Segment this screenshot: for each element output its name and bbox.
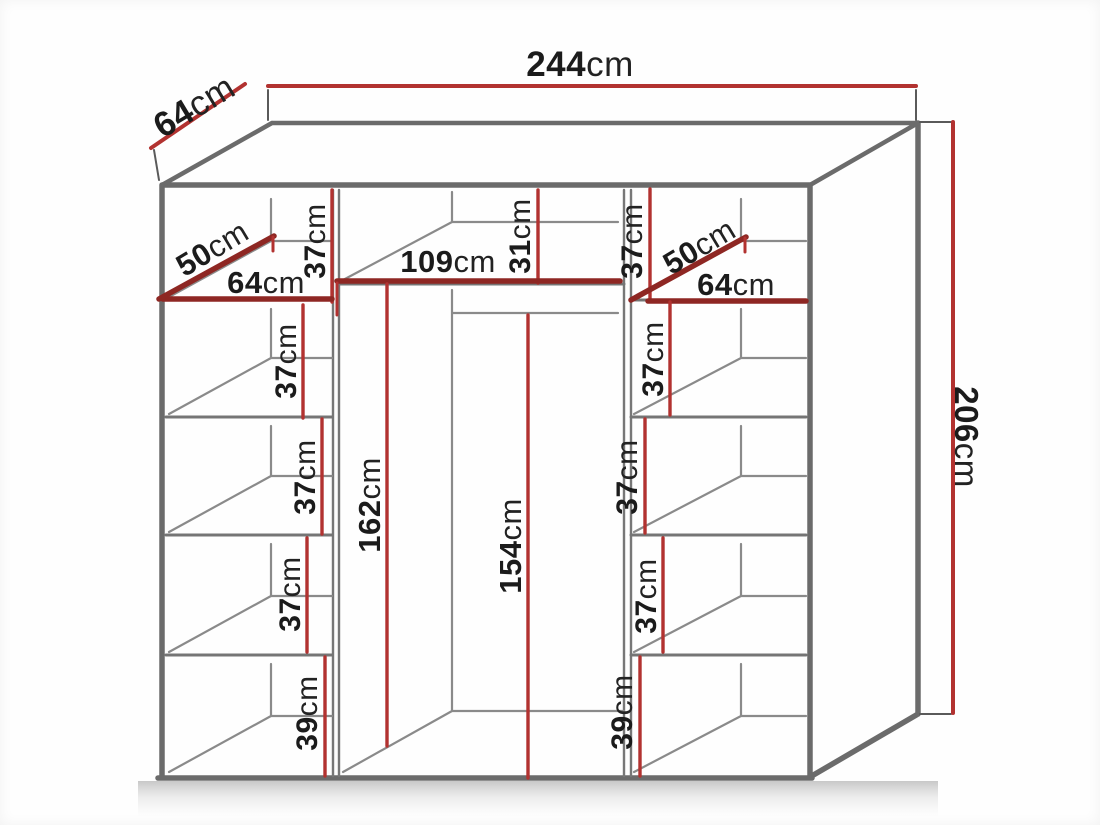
dim-label-right-cell-4: 39cm [606,674,639,749]
dim-label-middle-left-height: 162cm [352,457,387,553]
dim-label-middle-shelf-width: 109cm [400,244,496,279]
dim-label-right-cell-1: 37cm [637,321,670,396]
dim-label-overall-height: 206cm [949,386,986,488]
dim-label-right-shelf-width: 64cm [697,267,775,302]
dim-label-overall-width: 244cm [526,45,634,84]
dimension-labels: 244cm 64cm 206cm 37cm 50cm 64cm 37cm 37c… [146,45,985,751]
dim-label-right-top-cell: 37cm [616,203,649,278]
diagram-canvas: 244cm 64cm 206cm 37cm 50cm 64cm 37cm 37c… [0,0,1100,825]
dim-label-middle-right-height: 154cm [493,498,528,594]
dim-label-left-cell-2: 37cm [289,439,322,514]
top-face-edges [162,123,918,185]
dim-label-right-cell-2: 37cm [611,439,644,514]
dim-label-left-cell-4: 39cm [291,675,324,750]
dim-label-left-shelf-width: 64cm [227,265,305,300]
dim-label-left-cell-3: 37cm [274,556,307,631]
dim-label-left-cell-1: 37cm [270,323,303,398]
dim-label-middle-top-cell: 31cm [504,198,537,273]
floor-shadow [138,781,938,817]
wardrobe-structure [154,90,951,778]
wardrobe-dimension-diagram: 244cm 64cm 206cm 37cm 50cm 64cm 37cm 37c… [0,0,1100,825]
dim-label-right-cell-3: 37cm [630,558,663,633]
dim-label-overall-depth: 64cm [146,67,241,146]
shelf-front-edges [166,284,806,655]
